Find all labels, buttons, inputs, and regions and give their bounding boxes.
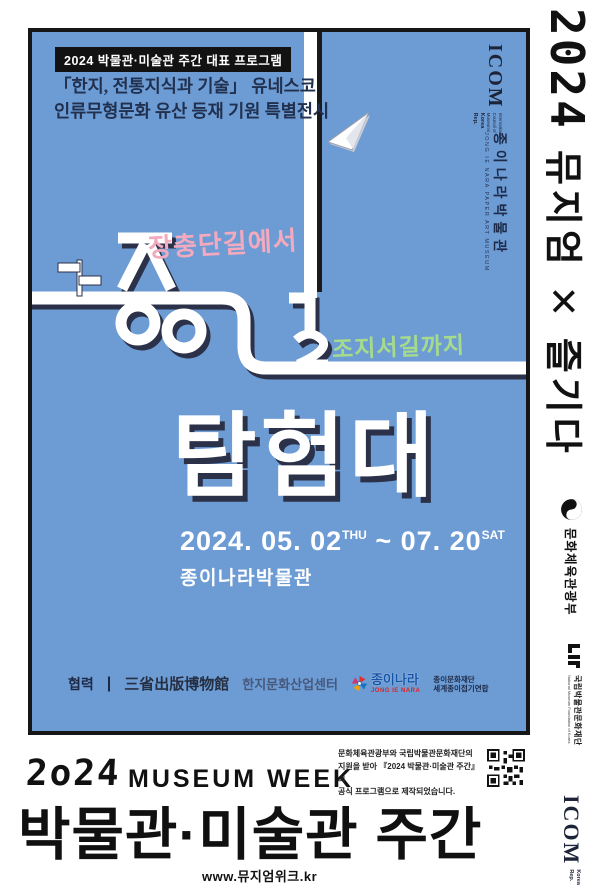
ieung-circle-1 — [121, 306, 155, 340]
subtitle-line-2: 인류무형문화 유산 등재 기원 특별전시 — [54, 99, 329, 124]
footer-year: 2o24 — [25, 753, 122, 794]
partner-paper-culture-foundation: 종이문화재단 세계종이접기연합 — [433, 675, 488, 694]
foundation-line-2: 세계종이접기연합 — [433, 684, 488, 693]
date-tilde: ~ — [367, 526, 401, 556]
partner-hanji-center: 한지문화산업센터 — [242, 674, 338, 693]
taegeuk-icon — [559, 497, 584, 522]
museum-name-vertical: 종이나라박물관 JONG IE NARA PAPER ART MUSEUM — [482, 132, 510, 304]
jongienara-kr: 종이나라 — [371, 672, 420, 688]
icom-wordmark: ICOM — [483, 44, 506, 109]
footer-credit: 문화체육관광부와 국립박물관문화재단의 지원을 받아 『2024 박물관·미술관… — [338, 748, 486, 799]
nmf-name-kr: 국립박물관문화재단 — [572, 675, 582, 746]
credit-line-3: 공식 프로그램으로 제작되었습니다. — [338, 786, 486, 799]
program-badge: 2024 박물관·미술관 주간 대표 프로그램 — [55, 47, 291, 72]
cooperation-row: 협력 | 三省出版博物館 한지문화산업센터 종이나라 JONG IE NARA … — [68, 672, 508, 696]
mcst-name: 문화체육관광부 — [562, 528, 581, 616]
giyeok-stroke — [289, 298, 310, 334]
date-start-day: THU — [342, 528, 367, 542]
credit-line-1: 문화체육관광부와 국립박물관문화재단의 — [338, 748, 486, 761]
rieul-stroke — [296, 334, 328, 364]
pinwheel-icon — [351, 675, 368, 692]
cooperation-divider: | — [107, 675, 111, 693]
exhibition-dates: 2024. 05. 02THU ~ 07. 20SAT — [180, 526, 505, 557]
vertical-road — [304, 32, 317, 298]
paper-plane-icon — [328, 113, 370, 152]
credit-line-2: 지원을 받아 『2024 박물관·미술관 주간』의 — [338, 761, 486, 787]
date-end-day: SAT — [482, 528, 505, 542]
date-start: 2024. 05. 02 — [180, 526, 342, 556]
road-edge-line — [317, 32, 322, 292]
rail-icom-logo: ICOM Korea Rep. — [550, 795, 584, 883]
title-word-team: 탐험대 — [172, 382, 438, 515]
ieung-circle-2 — [167, 314, 201, 348]
rail-icom-wordmark: ICOM — [558, 795, 584, 865]
qr-code — [487, 749, 525, 787]
nmf-logo-icon — [567, 643, 581, 669]
exhibition-subtitle: 「한지, 전통지식과 기술」 유네스코 인류무형문화 유산 등재 기원 특별전시 — [54, 74, 329, 124]
rail-year-mark: 2024 — [534, 8, 594, 140]
main-poster: 종이길 2024 박물관·미술관 주간 대표 프로그램 「한지, 전통지식과 기… — [28, 28, 530, 735]
partner-jongienara-logo: 종이나라 JONG IE NARA — [351, 672, 420, 696]
footer-museum-week-kr: 박물관·미술관 주간 — [18, 789, 530, 871]
poster-page: 종이길 2024 박물관·미술관 주간 대표 프로그램 「한지, 전통지식과 기… — [0, 0, 600, 893]
subtitle-line-1: 「한지, 전통지식과 기술」 유네스코 — [54, 74, 329, 99]
date-end: 07. 20 — [401, 526, 482, 556]
partner-samsung-museum: 三省出版博物館 — [124, 673, 229, 694]
rail-slogan: 뮤지엄 ✕ 즐기다 — [538, 150, 594, 446]
rail-nmf-logo: 국립박물관문화재단 National Museum Foundation of … — [550, 643, 582, 763]
rail-mcst-logo: 문화체육관광부 — [548, 497, 584, 619]
venue-name: 종이나라박물관 — [180, 563, 313, 590]
icom-region: Korea Rep. — [472, 113, 485, 129]
museum-name-kr: 종이나라박물관 — [490, 132, 510, 304]
cooperation-label: 협력 — [68, 674, 94, 694]
rail-icom-region: Korea Rep. — [568, 869, 581, 885]
signpost-icon — [58, 260, 101, 296]
route-to-label: 조지서길까지 — [331, 326, 465, 365]
museum-name-en: JONG IE NARA PAPER ART MUSEUM — [483, 132, 489, 304]
jongienara-en: JONG IE NARA — [371, 688, 420, 696]
foundation-line-1: 종이문화재단 — [433, 675, 488, 684]
footer-url: www.뮤지엄위크.kr — [202, 866, 317, 885]
route-from-label: 장충단길에서 — [147, 220, 298, 265]
icom-corner-logo: ICOM International Council of Museums Ko… — [476, 44, 506, 124]
nmf-name-en: National Museum Foundation of Korea — [566, 675, 571, 746]
